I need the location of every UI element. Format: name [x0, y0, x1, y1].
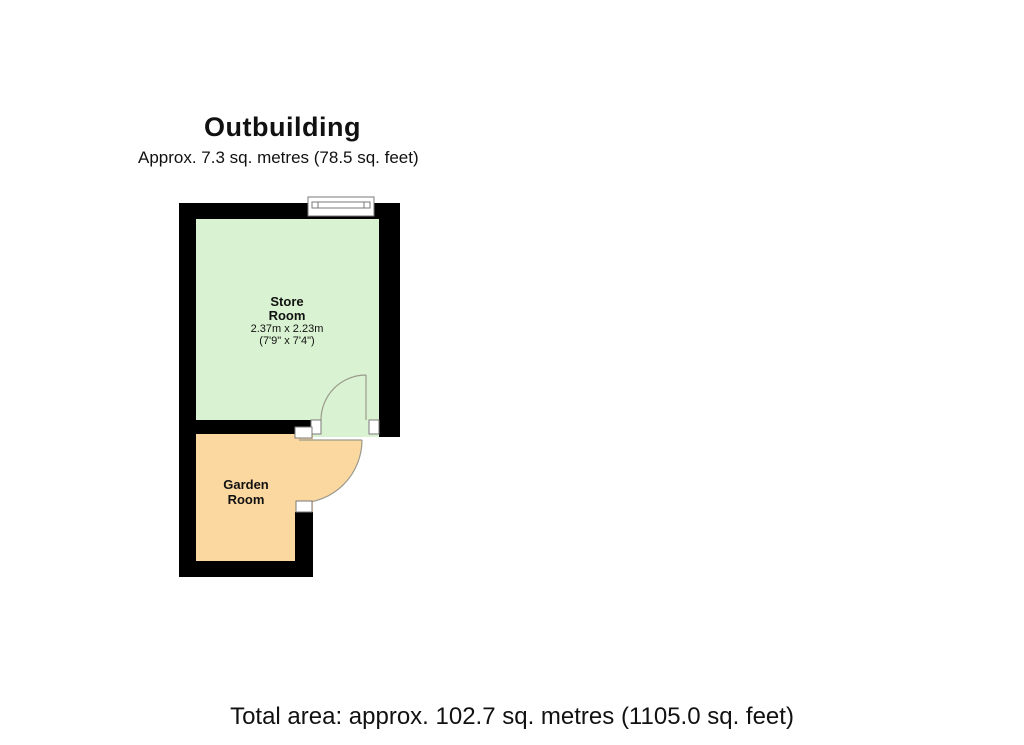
- store-room-dimensions-imperial: (7'9" x 7'4"): [259, 335, 314, 347]
- window-symbol: [308, 197, 374, 216]
- total-area-text: Total area: approx. 102.7 sq. metres (11…: [0, 703, 1024, 731]
- floorplan-drawing: Store Room 2.37m x 2.23m (7'9" x 7'4") G…: [160, 190, 420, 590]
- garden-door-swing: [299, 440, 362, 503]
- wall-left: [179, 203, 196, 577]
- garden-door-jamb-bottom: [296, 501, 312, 512]
- garden-room-name-line2: Room: [228, 492, 265, 507]
- store-room-name-line2: Room: [269, 308, 306, 323]
- store-room-dimensions-metric: 2.37m x 2.23m: [251, 323, 324, 335]
- store-room-name-line1: Store: [270, 294, 303, 309]
- floorplan-page: Outbuilding Approx. 7.3 sq. metres (78.5…: [0, 0, 1024, 745]
- store-door-jamb-right: [369, 420, 379, 434]
- page-subtitle: Approx. 7.3 sq. metres (78.5 sq. feet): [138, 148, 419, 168]
- wall-right: [379, 203, 400, 437]
- wall-internal: [196, 420, 311, 434]
- garden-room-name-line1: Garden: [223, 477, 269, 492]
- page-title: Outbuilding: [204, 112, 361, 143]
- wall-bottom: [179, 561, 313, 577]
- garden-door-jamb-top: [295, 427, 312, 438]
